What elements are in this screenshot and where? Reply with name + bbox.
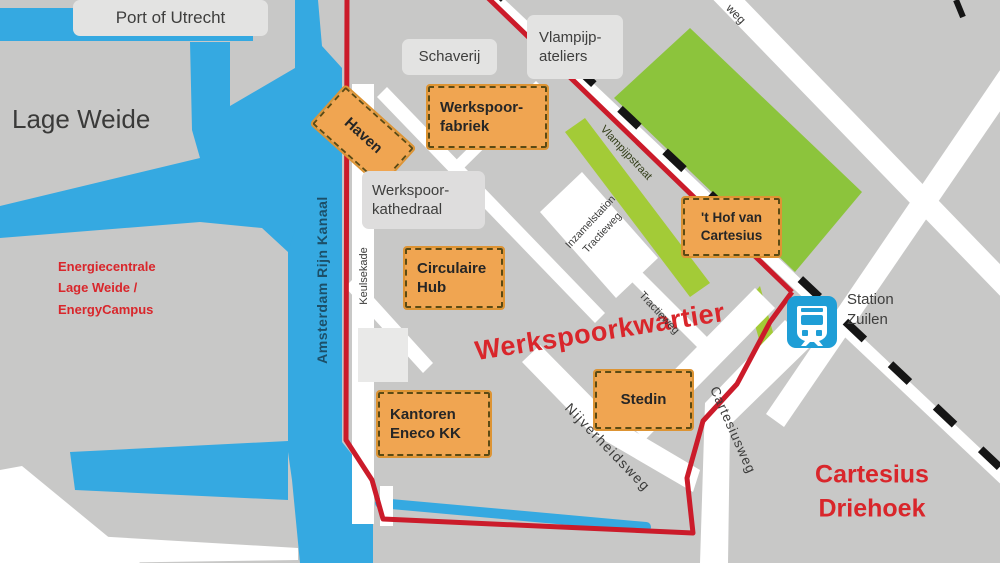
station-zuilen-label: Station Zuilen bbox=[847, 290, 894, 331]
werkspoorfabriek-text: Werkspoor- fabriek bbox=[440, 98, 523, 137]
circulaire-hub-site[interactable]: Circulaire Hub bbox=[405, 248, 503, 308]
circulaire-hub-text: Circulaire Hub bbox=[417, 259, 486, 298]
port-of-utrecht-text: Port of Utrecht bbox=[116, 7, 226, 29]
vlampijp-ateliers-text: Vlampijp- ateliers bbox=[539, 28, 602, 67]
cartesius-driehoek-label: Cartesius Driehoek bbox=[815, 458, 929, 526]
schaverij-text: Schaverij bbox=[419, 47, 481, 67]
vlampijp-ateliers-label: Vlampijp- ateliers bbox=[527, 15, 623, 79]
energiecentrale-label: Energiecentrale Lage Weide / EnergyCampu… bbox=[58, 256, 156, 320]
map-container: Port of Utrecht Lage Weide Energiecentra… bbox=[0, 0, 1000, 563]
schaverij-label: Schaverij bbox=[402, 39, 497, 75]
kantoren-eneco-text: Kantoren Eneco KK bbox=[390, 405, 461, 444]
werkspoorfabriek-site[interactable]: Werkspoor- fabriek bbox=[428, 86, 547, 148]
lage-weide-label: Lage Weide bbox=[12, 104, 150, 135]
kantoren-eneco-site[interactable]: Kantoren Eneco KK bbox=[378, 392, 490, 456]
hof-van-cartesius-text: 't Hof van Cartesius bbox=[701, 209, 763, 244]
station-zuilen-icon[interactable] bbox=[787, 296, 837, 348]
werkspoor-kathedraal-label: Werkspoor- kathedraal bbox=[362, 171, 485, 229]
stedin-text: Stedin bbox=[621, 390, 667, 410]
hof-van-cartesius-site[interactable]: 't Hof van Cartesius bbox=[683, 198, 780, 256]
amsterdam-rijn-kanaal-label: Amsterdam Rijn Kanaal bbox=[314, 196, 330, 364]
train-icon bbox=[787, 296, 837, 348]
keulsekade-label: Keulsekade bbox=[358, 247, 370, 305]
port-of-utrecht-label: Port of Utrecht bbox=[73, 0, 268, 36]
werkspoor-kathedraal-text: Werkspoor- kathedraal bbox=[372, 181, 449, 220]
haven-text: Haven bbox=[340, 114, 387, 159]
stedin-site[interactable]: Stedin bbox=[595, 371, 692, 429]
